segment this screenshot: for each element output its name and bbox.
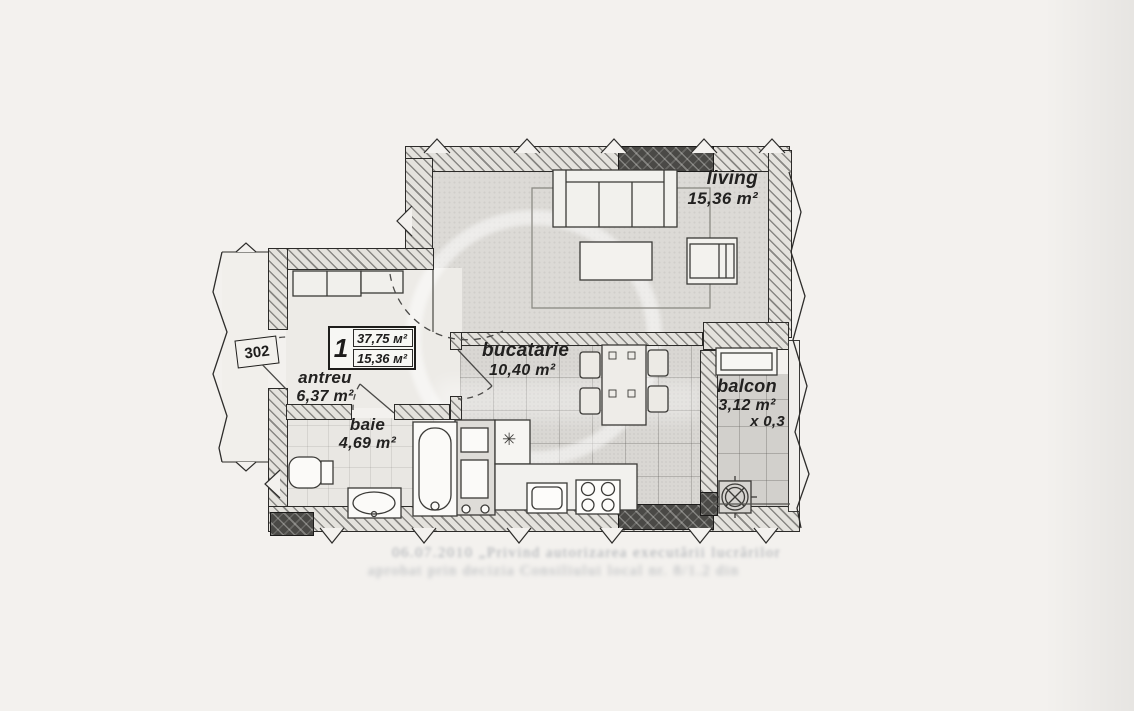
- balcon-name: balcon: [703, 377, 791, 397]
- room-label-antreu: antreu 6,37 m²: [284, 369, 366, 405]
- bucatarie-area: 10,40 m²: [482, 362, 586, 380]
- unit-living-area: 15,36 м²: [353, 349, 413, 367]
- wall-kitchen-divider-upper: [450, 332, 462, 350]
- balcon-coefficient: x 0,3: [703, 414, 791, 431]
- wall-living-south-balcony: [703, 322, 789, 350]
- wall-bottom: [268, 506, 800, 532]
- floor-plan-page: living 15,36 m² bucatarie 10,40 m² balco…: [0, 0, 1134, 711]
- baie-name: baie: [325, 416, 410, 435]
- wall-balcony-west-dark: [700, 492, 718, 516]
- wall-living-east: [768, 150, 792, 338]
- wall-bottom-dark-left: [270, 512, 314, 536]
- baie-area: 4,69 m²: [325, 435, 410, 453]
- room-label-baie: baie 4,69 m²: [325, 416, 410, 452]
- wall-left-lower: [268, 388, 288, 508]
- room-label-bucatarie: bucatarie 10,40 m²: [482, 341, 586, 379]
- bleedthrough-text-line1: 06.07.2010 „Privind autorizarea executăr…: [392, 545, 781, 562]
- wall-kitchen-divider-lower: [450, 396, 462, 420]
- bleedthrough-text-line2: aprobat prin decizia Consiliului local n…: [368, 563, 740, 580]
- living-area: 15,36 m²: [630, 190, 758, 209]
- unit-number: 1: [330, 328, 352, 368]
- balcon-area: 3,12 m²: [703, 397, 791, 415]
- scan-watermark-band: [436, 380, 702, 420]
- wall-antreu-top: [278, 248, 434, 270]
- bucatarie-name: bucatarie: [482, 341, 586, 362]
- room-label-living: living 15,36 m²: [630, 169, 758, 209]
- living-name: living: [630, 169, 758, 190]
- wall-left-upper: [268, 248, 288, 330]
- room-label-balcon: balcon 3,12 m² x 0,3: [703, 377, 791, 431]
- antreu-name: antreu: [284, 369, 366, 388]
- apartment-door-number: 302: [234, 336, 279, 369]
- balcony-window: [716, 348, 777, 375]
- antreu-area: 6,37 m²: [284, 388, 366, 406]
- unit-total-area: 37,75 м²: [353, 329, 413, 347]
- unit-info-badge: 1 37,75 м² 15,36 м²: [328, 326, 416, 370]
- snowflake-icon: ✳: [502, 430, 516, 450]
